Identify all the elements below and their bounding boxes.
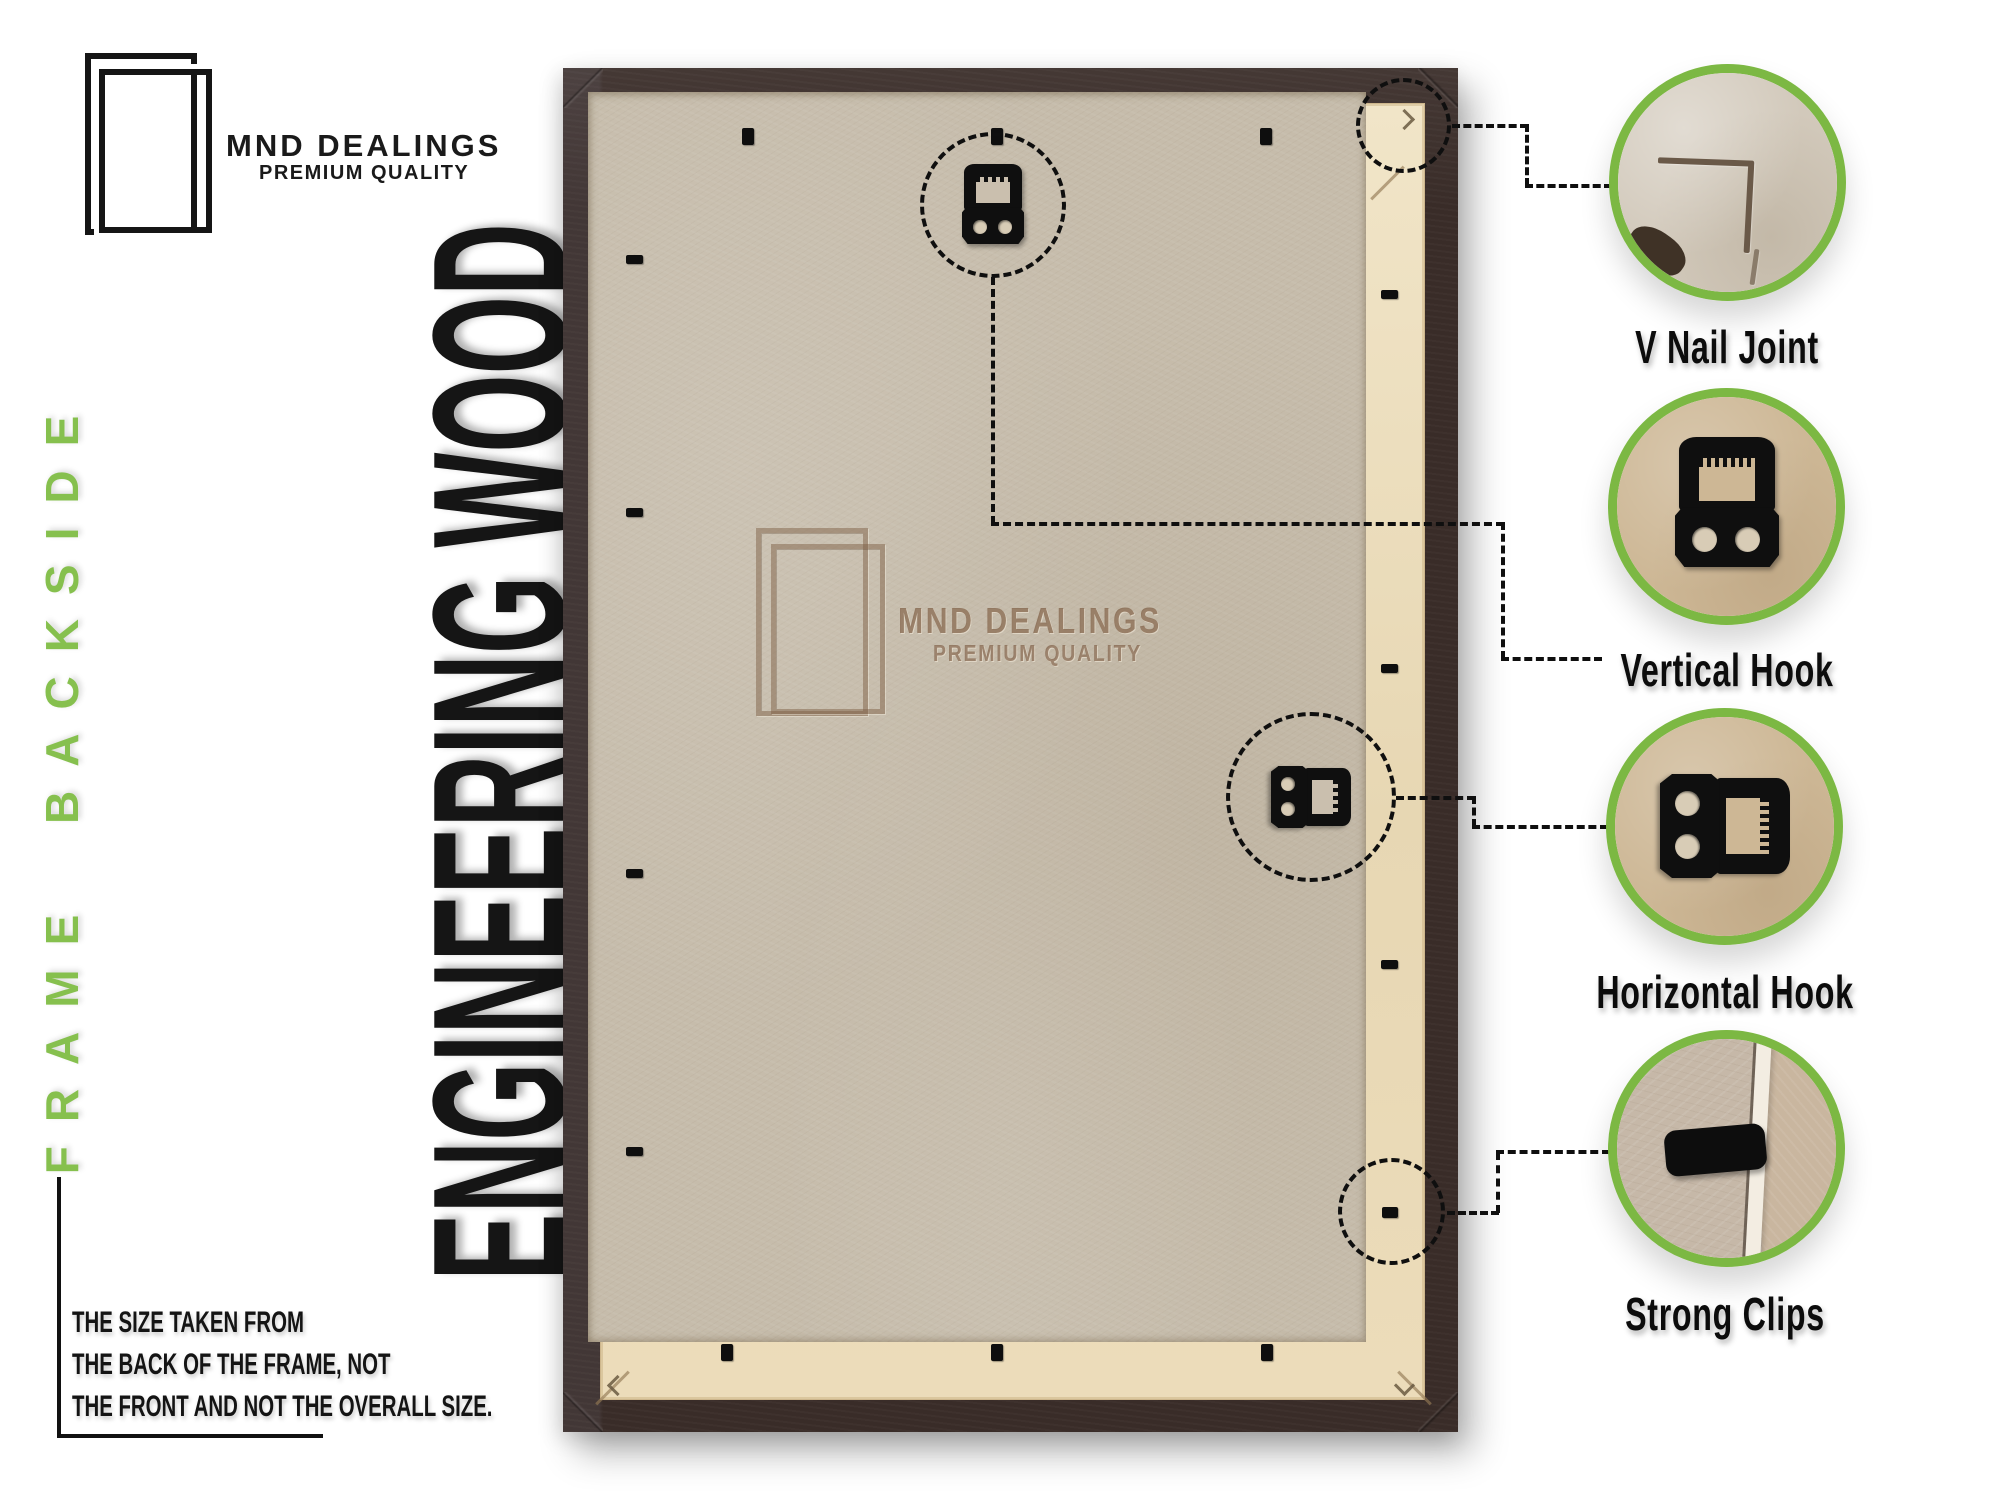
brand-logo-frame-icon	[99, 69, 212, 233]
note-line: THE SIZE TAKEN FROM	[72, 1306, 304, 1340]
vertical-hook-marker-circle	[920, 132, 1066, 278]
flexi-clip	[1381, 664, 1398, 673]
note-bracket-line	[57, 1177, 61, 1438]
flexi-clip	[1260, 128, 1272, 145]
connector-line	[991, 277, 995, 524]
clip-marker-circle	[1338, 1158, 1445, 1265]
callout-v-nail-joint	[1609, 64, 1846, 301]
brand-tagline: PREMIUM QUALITY	[259, 162, 469, 185]
connector-line	[1472, 825, 1608, 829]
hook-hole	[1675, 834, 1700, 859]
frame-miter-line	[563, 1392, 603, 1432]
callout-strong-clips	[1608, 1030, 1845, 1267]
note-line: THE BACK OF THE FRAME, NOT	[72, 1348, 390, 1382]
flexi-clip	[1381, 290, 1398, 299]
corner-marker-circle	[1356, 78, 1451, 173]
frame-backside-infographic: MND DEALINGS PREMIUM QUALITY FRAME BACKS…	[0, 0, 2000, 1500]
connector-line	[1525, 124, 1529, 186]
hook-plate	[1675, 507, 1779, 567]
hook-hole	[1692, 527, 1717, 552]
callout-label-vertical-hook: Vertical Hook	[1620, 643, 1833, 697]
flexi-clip	[742, 128, 754, 145]
horizontal-hook-marker-circle	[1226, 712, 1396, 882]
connector-line	[1472, 796, 1476, 827]
hook-hole	[1735, 527, 1760, 552]
connector-line	[991, 522, 1504, 526]
connector-line	[1396, 796, 1475, 800]
callout-label-horizontal-hook: Horizontal Hook	[1596, 965, 1853, 1019]
note-bracket-line	[57, 1434, 323, 1438]
vertical-hook-icon	[1675, 437, 1779, 567]
hook-serration	[1760, 798, 1769, 854]
side-label-frame-backside: FRAME BACKSIDE	[35, 392, 89, 1175]
frame-lip-photo	[1762, 1039, 1836, 1258]
flexi-clip	[626, 508, 643, 517]
horizontal-hook-icon	[1660, 774, 1790, 878]
connector-line	[1447, 1211, 1499, 1215]
connector-line	[1525, 184, 1612, 188]
callout-label-v-nail-joint: V Nail Joint	[1635, 320, 1819, 374]
connector-line	[1496, 1150, 1610, 1154]
connector-line	[1452, 124, 1528, 128]
flexi-clip	[626, 1147, 643, 1156]
brand-name: MND DEALINGS	[226, 128, 501, 164]
note-line: THE FRONT AND NOT THE OVERALL SIZE.	[72, 1390, 492, 1424]
connector-line	[1501, 522, 1505, 659]
flexi-clip	[1261, 1344, 1273, 1361]
flexi-clip	[1381, 960, 1398, 969]
flexi-clip	[626, 255, 643, 264]
flexi-clip	[991, 1344, 1003, 1361]
watermark-logo-icon	[771, 544, 885, 714]
watermark-tagline: PREMIUM QUALITY	[933, 640, 1142, 667]
flexi-clip	[626, 869, 643, 878]
flexi-clip	[721, 1344, 733, 1361]
hook-plate	[1660, 774, 1720, 878]
callout-label-strong-clips: Strong Clips	[1625, 1287, 1825, 1341]
watermark-name: MND DEALINGS	[898, 600, 1162, 642]
connector-line	[1501, 657, 1602, 661]
hook-hole	[1675, 791, 1700, 816]
strong-clip-icon	[1663, 1122, 1767, 1177]
hook-serration	[1699, 458, 1755, 467]
callout-vertical-hook	[1608, 388, 1845, 625]
mdf-board: MND DEALINGS PREMIUM QUALITY	[588, 92, 1366, 1342]
connector-line	[1496, 1152, 1500, 1213]
callout-horizontal-hook	[1606, 708, 1843, 945]
